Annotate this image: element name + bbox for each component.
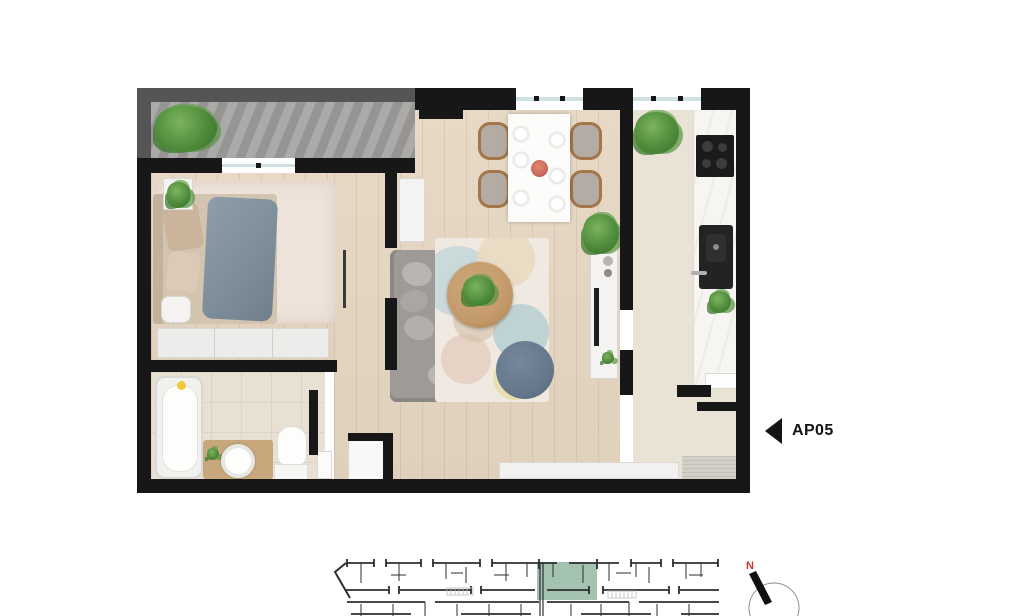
wall-bedroom-right-lower [385,298,397,370]
dining-chair [478,122,510,160]
toilet-tank [274,464,308,480]
wall-kitchen-divider-upper [620,110,633,310]
wall-fin-dining [419,110,463,119]
bathtub-basin [162,385,198,472]
balcony-railing-top [137,88,415,102]
bathroom-door [317,451,332,479]
bedroom-wardrobe [157,328,329,358]
wall-hall-niche-right [383,433,393,481]
living-cabinet [399,178,425,242]
dining-table [508,114,570,222]
dining-chair [570,122,602,160]
console-plant-icon [602,352,614,364]
cooktop [696,135,734,177]
table-centerpiece [531,160,548,177]
dining-chair [478,170,510,208]
window-dining [516,88,583,110]
compass-north-label: N [746,560,754,572]
wall-entry-a [677,385,711,397]
rubber-duck-icon [177,381,186,390]
compass: N [738,558,810,616]
wall-bedroom-right-upper [385,173,397,248]
toilet-bowl [277,426,307,466]
wall-right [736,88,750,493]
kitchen-sink [699,225,733,289]
tv [594,288,599,346]
tv-console [590,243,618,379]
marker-arrow-icon [765,418,782,444]
bed-pillow [164,250,201,294]
window-bedroom [222,158,295,173]
apartment-marker[interactable]: AP05 [765,417,834,445]
wall-bedroom-bathroom [137,360,337,372]
faucet-icon [691,271,707,275]
wall-kitchen-divider-lower [620,350,633,395]
bathroom-sink [221,444,255,478]
window-kitchen [633,88,701,110]
dining-chair [570,170,602,208]
toilet [274,426,308,480]
apartment-marker-label: AP05 [792,422,834,440]
wall-bathroom-right [309,390,318,455]
building-outline [331,557,721,616]
pouf [496,341,554,399]
balcony-railing-left [137,88,151,158]
building-minimap [331,557,721,616]
wall-left [137,158,151,493]
minimap-highlighted-unit[interactable] [537,562,597,600]
wall-entry-b [697,402,750,411]
apartment-floor-plan [137,88,750,493]
bed-blanket [202,196,278,321]
bedroom-bench [161,296,191,323]
entry-door-mat [682,456,736,479]
wall-bottom [137,479,750,493]
floor-plan-page: AP05 [0,0,1024,616]
bedroom-door-leaf [343,250,346,308]
bathtub [155,376,203,479]
entry-low-cabinet [499,462,679,479]
